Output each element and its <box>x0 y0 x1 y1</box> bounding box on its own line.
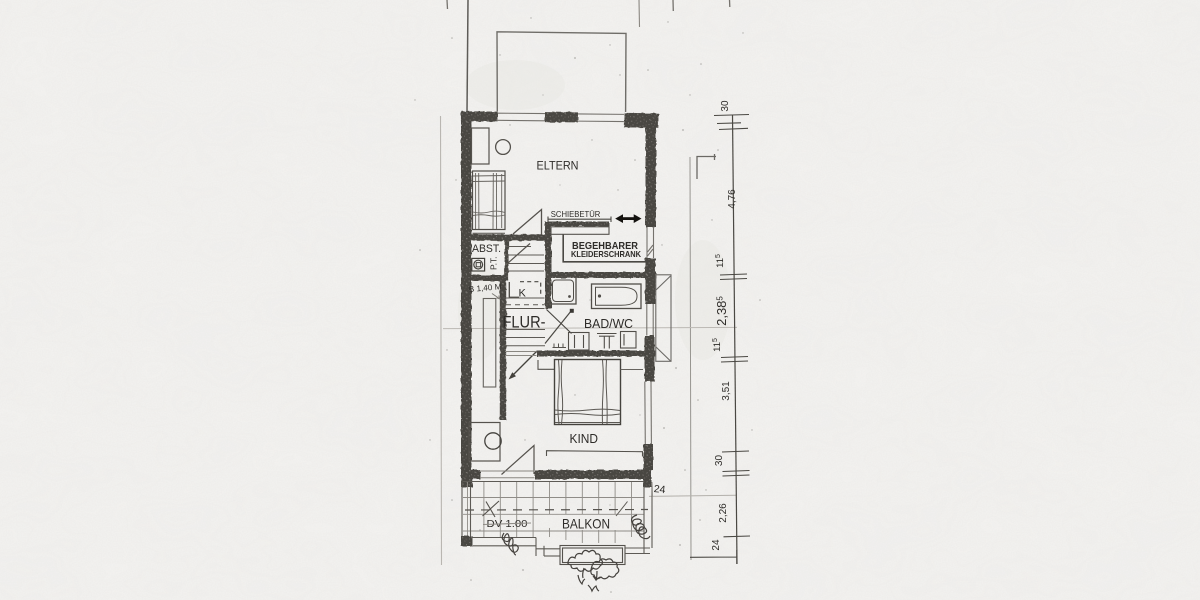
svg-text:24: 24 <box>711 539 722 551</box>
svg-text:KIND: KIND <box>570 432 599 446</box>
svg-text:24: 24 <box>653 483 666 496</box>
svg-text:SCHIEBETÜR: SCHIEBETÜR <box>551 209 601 219</box>
svg-text:3,51: 3,51 <box>721 381 732 401</box>
svg-text:P.T.: P.T. <box>489 256 499 270</box>
svg-text:30: 30 <box>714 455 725 467</box>
svg-text:FLUR-: FLUR- <box>503 314 546 332</box>
svg-text:BALKON: BALKON <box>562 516 610 532</box>
svg-text:30: 30 <box>720 100 731 112</box>
svg-text:KLEIDERSCHRANK: KLEIDERSCHRANK <box>571 250 641 259</box>
svg-text:ABST.: ABST. <box>472 243 501 255</box>
svg-text:BAD/WC: BAD/WC <box>584 316 633 331</box>
svg-text:4,76: 4,76 <box>727 189 738 209</box>
svg-text:ELTERN: ELTERN <box>537 161 579 173</box>
svg-text:2,26: 2,26 <box>718 503 729 523</box>
